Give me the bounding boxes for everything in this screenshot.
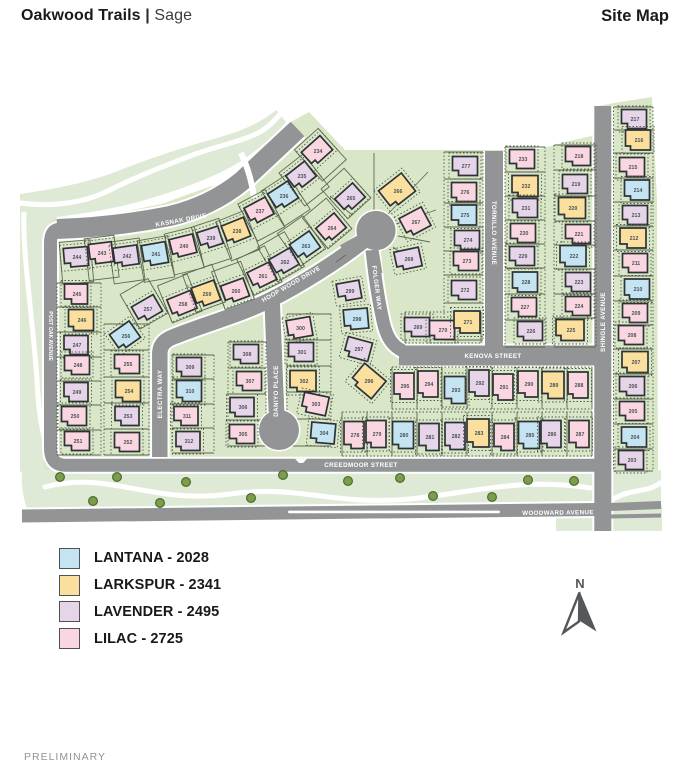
svg-text:307: 307 <box>246 379 255 385</box>
svg-text:260: 260 <box>232 289 241 295</box>
svg-text:245: 245 <box>73 292 82 298</box>
svg-text:303: 303 <box>312 402 321 408</box>
svg-text:300: 300 <box>296 326 305 332</box>
svg-text:POST OAK AVENUE: POST OAK AVENUE <box>47 311 53 361</box>
svg-text:221: 221 <box>575 232 584 238</box>
svg-text:241: 241 <box>152 252 161 258</box>
svg-text:275: 275 <box>461 213 470 219</box>
svg-text:293: 293 <box>452 388 461 394</box>
svg-text:299: 299 <box>346 289 355 295</box>
svg-text:311: 311 <box>183 414 191 420</box>
svg-text:287: 287 <box>576 432 585 438</box>
svg-text:DANIYO PLACE: DANIYO PLACE <box>273 365 280 417</box>
svg-text:239: 239 <box>207 236 216 242</box>
svg-text:217: 217 <box>631 117 640 123</box>
svg-text:237: 237 <box>256 209 265 215</box>
svg-text:236: 236 <box>280 194 289 200</box>
svg-text:230: 230 <box>520 231 529 237</box>
svg-text:259: 259 <box>203 292 212 298</box>
svg-text:246: 246 <box>78 318 87 324</box>
svg-text:258: 258 <box>179 302 188 308</box>
svg-text:295: 295 <box>401 384 410 390</box>
svg-text:276: 276 <box>461 190 470 196</box>
svg-text:238: 238 <box>233 229 242 235</box>
svg-text:226: 226 <box>527 329 536 335</box>
svg-text:264: 264 <box>328 226 337 232</box>
svg-text:294: 294 <box>425 382 434 388</box>
svg-text:292: 292 <box>476 381 485 387</box>
svg-text:283: 283 <box>475 431 484 437</box>
svg-text:216: 216 <box>635 138 644 144</box>
svg-text:223: 223 <box>575 280 584 286</box>
svg-text:204: 204 <box>631 435 640 441</box>
svg-text:279: 279 <box>373 432 382 438</box>
svg-text:242: 242 <box>123 254 132 260</box>
svg-text:265: 265 <box>347 196 356 202</box>
svg-text:248: 248 <box>74 363 83 369</box>
svg-text:213: 213 <box>632 213 641 219</box>
svg-text:308: 308 <box>243 352 252 358</box>
svg-text:282: 282 <box>452 434 461 440</box>
svg-text:211: 211 <box>632 261 640 267</box>
svg-text:253: 253 <box>124 414 133 420</box>
svg-text:302: 302 <box>300 379 309 385</box>
svg-text:207: 207 <box>632 360 641 366</box>
svg-text:280: 280 <box>400 433 409 439</box>
svg-text:254: 254 <box>125 389 134 395</box>
svg-text:266: 266 <box>394 189 403 195</box>
svg-text:233: 233 <box>519 157 528 163</box>
svg-text:251: 251 <box>74 439 83 445</box>
svg-text:214: 214 <box>634 188 643 194</box>
svg-text:306: 306 <box>239 405 248 411</box>
svg-text:273: 273 <box>463 259 472 265</box>
svg-text:229: 229 <box>519 254 528 260</box>
svg-text:205: 205 <box>629 409 638 415</box>
svg-text:222: 222 <box>570 254 579 260</box>
svg-text:284: 284 <box>501 435 510 441</box>
svg-text:289: 289 <box>550 383 559 389</box>
svg-text:256: 256 <box>122 334 131 340</box>
svg-text:312: 312 <box>185 439 194 445</box>
svg-text:235: 235 <box>298 174 307 180</box>
svg-text:247: 247 <box>73 343 82 349</box>
svg-text:288: 288 <box>575 383 584 389</box>
svg-text:274: 274 <box>464 238 473 244</box>
svg-text:304: 304 <box>320 431 329 437</box>
svg-text:297: 297 <box>355 347 364 353</box>
svg-text:269: 269 <box>414 325 423 331</box>
svg-text:234: 234 <box>314 149 323 155</box>
svg-text:KENOVA STREET: KENOVA STREET <box>464 353 521 360</box>
svg-text:277: 277 <box>462 164 471 170</box>
svg-text:225: 225 <box>567 328 576 334</box>
svg-text:270: 270 <box>439 328 448 334</box>
svg-text:309: 309 <box>186 365 195 371</box>
svg-text:281: 281 <box>426 435 435 441</box>
svg-text:301: 301 <box>298 350 307 356</box>
svg-text:ELECTRA WAY: ELECTRA WAY <box>157 369 164 418</box>
svg-text:CREEDMOOR STREET: CREEDMOOR STREET <box>324 462 397 469</box>
svg-text:310: 310 <box>186 389 195 395</box>
svg-text:249: 249 <box>73 390 82 396</box>
svg-text:255: 255 <box>124 362 133 368</box>
svg-text:261: 261 <box>259 274 268 280</box>
svg-text:263: 263 <box>302 244 311 250</box>
svg-text:286: 286 <box>548 432 557 438</box>
svg-text:227: 227 <box>521 305 530 311</box>
svg-text:220: 220 <box>569 206 578 212</box>
svg-text:240: 240 <box>180 244 189 250</box>
svg-text:305: 305 <box>239 432 248 438</box>
svg-text:244: 244 <box>73 255 82 261</box>
svg-text:278: 278 <box>351 433 360 439</box>
svg-text:231: 231 <box>522 206 531 212</box>
svg-text:215: 215 <box>629 165 638 171</box>
svg-text:243: 243 <box>98 251 107 257</box>
svg-text:N: N <box>575 576 584 591</box>
svg-text:257: 257 <box>144 307 153 313</box>
svg-text:296: 296 <box>365 379 374 385</box>
svg-text:252: 252 <box>124 440 133 446</box>
svg-text:212: 212 <box>630 236 639 242</box>
svg-text:228: 228 <box>522 280 531 286</box>
svg-text:224: 224 <box>575 304 584 310</box>
svg-text:290: 290 <box>525 382 534 388</box>
svg-text:208: 208 <box>628 333 637 339</box>
svg-text:268: 268 <box>405 257 414 263</box>
svg-text:262: 262 <box>281 260 290 266</box>
svg-text:250: 250 <box>71 414 80 420</box>
svg-text:219: 219 <box>572 182 581 188</box>
svg-text:272: 272 <box>461 288 470 294</box>
svg-text:TORNILLO AVENUE: TORNILLO AVENUE <box>490 201 497 265</box>
svg-text:WOODWARD AVENUE: WOODWARD AVENUE <box>522 509 594 517</box>
svg-text:206: 206 <box>629 384 638 390</box>
svg-text:210: 210 <box>634 287 643 293</box>
svg-text:285: 285 <box>526 433 535 439</box>
svg-text:218: 218 <box>575 154 584 160</box>
svg-text:298: 298 <box>353 317 362 323</box>
svg-text:267: 267 <box>412 220 421 226</box>
svg-text:232: 232 <box>522 184 531 190</box>
svg-text:209: 209 <box>632 311 641 317</box>
svg-text:SHINGLE AVENUE: SHINGLE AVENUE <box>600 292 607 352</box>
svg-text:271: 271 <box>464 320 473 326</box>
svg-text:291: 291 <box>500 385 509 391</box>
svg-text:203: 203 <box>628 458 637 464</box>
